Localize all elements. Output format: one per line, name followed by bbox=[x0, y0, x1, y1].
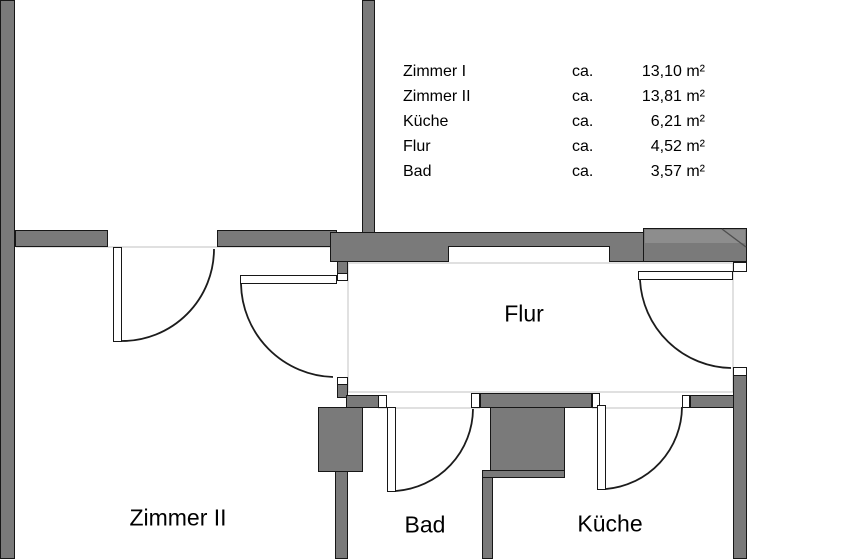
legend-ca: ca. bbox=[572, 159, 612, 184]
legend-area-value: 13,81 m² bbox=[612, 84, 705, 109]
area-legend: Zimmer I ca. 13,10 m² Zimmer II ca. 13,8… bbox=[403, 59, 705, 184]
jamb-door-zimmer2-top bbox=[337, 273, 348, 281]
legend-ca: ca. bbox=[572, 134, 612, 159]
wall-niche-flur bbox=[448, 246, 610, 262]
wall-flur-south-2 bbox=[480, 393, 592, 408]
legend-room-name: Zimmer II bbox=[403, 84, 572, 109]
wall-outer-right bbox=[733, 375, 747, 559]
legend-ca: ca. bbox=[572, 109, 612, 134]
room-label-bad: Bad bbox=[405, 512, 446, 539]
door-leaf-entrance bbox=[638, 271, 733, 280]
legend-area-value: 4,52 m² bbox=[612, 134, 705, 159]
door-leaf-flur-zimmer2 bbox=[240, 275, 337, 284]
jamb-entrance-top bbox=[733, 262, 747, 272]
shaft-block-middle-base bbox=[482, 470, 565, 478]
legend-ca: ca. bbox=[572, 59, 612, 84]
wall-zimmer1-zimmer2-right bbox=[217, 230, 337, 247]
legend-room-name: Bad bbox=[403, 159, 572, 184]
legend-room-name: Küche bbox=[403, 109, 572, 134]
wall-corner-highlight bbox=[645, 230, 745, 243]
legend-area-value: 6,21 m² bbox=[612, 109, 705, 134]
legend-room-name: Zimmer I bbox=[403, 59, 572, 84]
legend-area-value: 3,57 m² bbox=[612, 159, 705, 184]
wall-flur-south-3 bbox=[690, 395, 735, 408]
legend-row-zimmer1: Zimmer I ca. 13,10 m² bbox=[403, 59, 705, 84]
door-leaf-bad bbox=[387, 407, 396, 492]
door-leaf-kueche bbox=[597, 405, 606, 490]
wall-zimmer1-zimmer2-left bbox=[15, 230, 108, 247]
room-label-zimmer2: Zimmer II bbox=[129, 505, 226, 532]
floorplan-canvas: Flur Zimmer II Bad Küche Zimmer I ca. 13… bbox=[0, 0, 848, 559]
jamb-door-bad-right bbox=[471, 393, 480, 408]
jamb-door-bad-left bbox=[378, 395, 387, 408]
wall-zimmer1-east bbox=[362, 0, 375, 233]
jamb-door-zimmer2-bottom bbox=[337, 377, 348, 385]
shaft-block-left bbox=[318, 407, 363, 472]
wall-zimmer2-bad bbox=[335, 471, 348, 559]
wall-bad-kueche bbox=[482, 477, 493, 559]
legend-ca: ca. bbox=[572, 84, 612, 109]
legend-room-name: Flur bbox=[403, 134, 572, 159]
faint-outline-flur bbox=[348, 263, 733, 392]
legend-row-flur: Flur ca. 4,52 m² bbox=[403, 134, 705, 159]
legend-row-kueche: Küche ca. 6,21 m² bbox=[403, 109, 705, 134]
door-leaf-zimmer1-zimmer2 bbox=[113, 247, 122, 342]
legend-area-value: 13,10 m² bbox=[612, 59, 705, 84]
legend-row-zimmer2: Zimmer II ca. 13,81 m² bbox=[403, 84, 705, 109]
jamb-entrance-bottom bbox=[733, 367, 747, 376]
jamb-door-kueche-right bbox=[682, 395, 690, 408]
legend-row-bad: Bad ca. 3,57 m² bbox=[403, 159, 705, 184]
room-label-flur: Flur bbox=[504, 301, 544, 328]
room-label-kueche: Küche bbox=[577, 511, 642, 538]
shaft-block-middle bbox=[490, 407, 565, 472]
wall-outer-left bbox=[0, 0, 15, 559]
